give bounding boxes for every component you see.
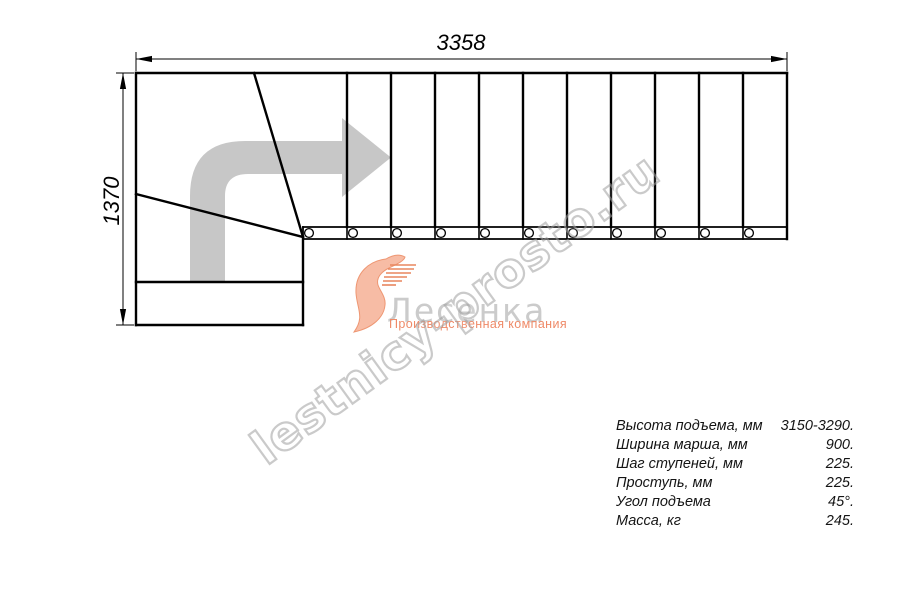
spec-row: Шаг ступеней, мм 225. bbox=[616, 455, 854, 474]
spec-value: 245. bbox=[826, 512, 854, 531]
left-dimension-label: 1370 bbox=[99, 151, 123, 251]
spec-value: 225. bbox=[826, 474, 854, 493]
stringer-strip bbox=[303, 227, 787, 239]
spec-row: Проступь, мм 225. bbox=[616, 474, 854, 493]
stair-drawing-page: 3358 1370 Лесенка Производственная компа… bbox=[0, 0, 900, 600]
spec-label: Угол подъема bbox=[616, 493, 711, 512]
spec-value: 900. bbox=[826, 436, 854, 455]
spec-table: Высота подъема, мм 3150-3290. Ширина мар… bbox=[616, 417, 854, 531]
spec-row: Масса, кг 245. bbox=[616, 512, 854, 531]
spec-label: Шаг ступеней, мм bbox=[616, 455, 743, 474]
stair-outline bbox=[136, 73, 787, 325]
spec-label: Масса, кг bbox=[616, 512, 681, 531]
spec-row: Высота подъема, мм 3150-3290. bbox=[616, 417, 854, 436]
top-dimension-label: 3358 bbox=[411, 30, 511, 56]
spec-label: Ширина марша, мм bbox=[616, 436, 748, 455]
baluster-circles bbox=[305, 229, 754, 238]
spec-value: 225. bbox=[826, 455, 854, 474]
logo-tagline: Производственная компания bbox=[389, 317, 567, 331]
spec-value: 45°. bbox=[828, 493, 854, 512]
spec-label: Высота подъема, мм bbox=[616, 417, 763, 436]
tread-lines bbox=[347, 73, 743, 227]
spec-value: 3150-3290. bbox=[781, 417, 854, 436]
spec-row: Ширина марша, мм 900. bbox=[616, 436, 854, 455]
spec-label: Проступь, мм bbox=[616, 474, 712, 493]
spec-row: Угол подъема 45°. bbox=[616, 493, 854, 512]
